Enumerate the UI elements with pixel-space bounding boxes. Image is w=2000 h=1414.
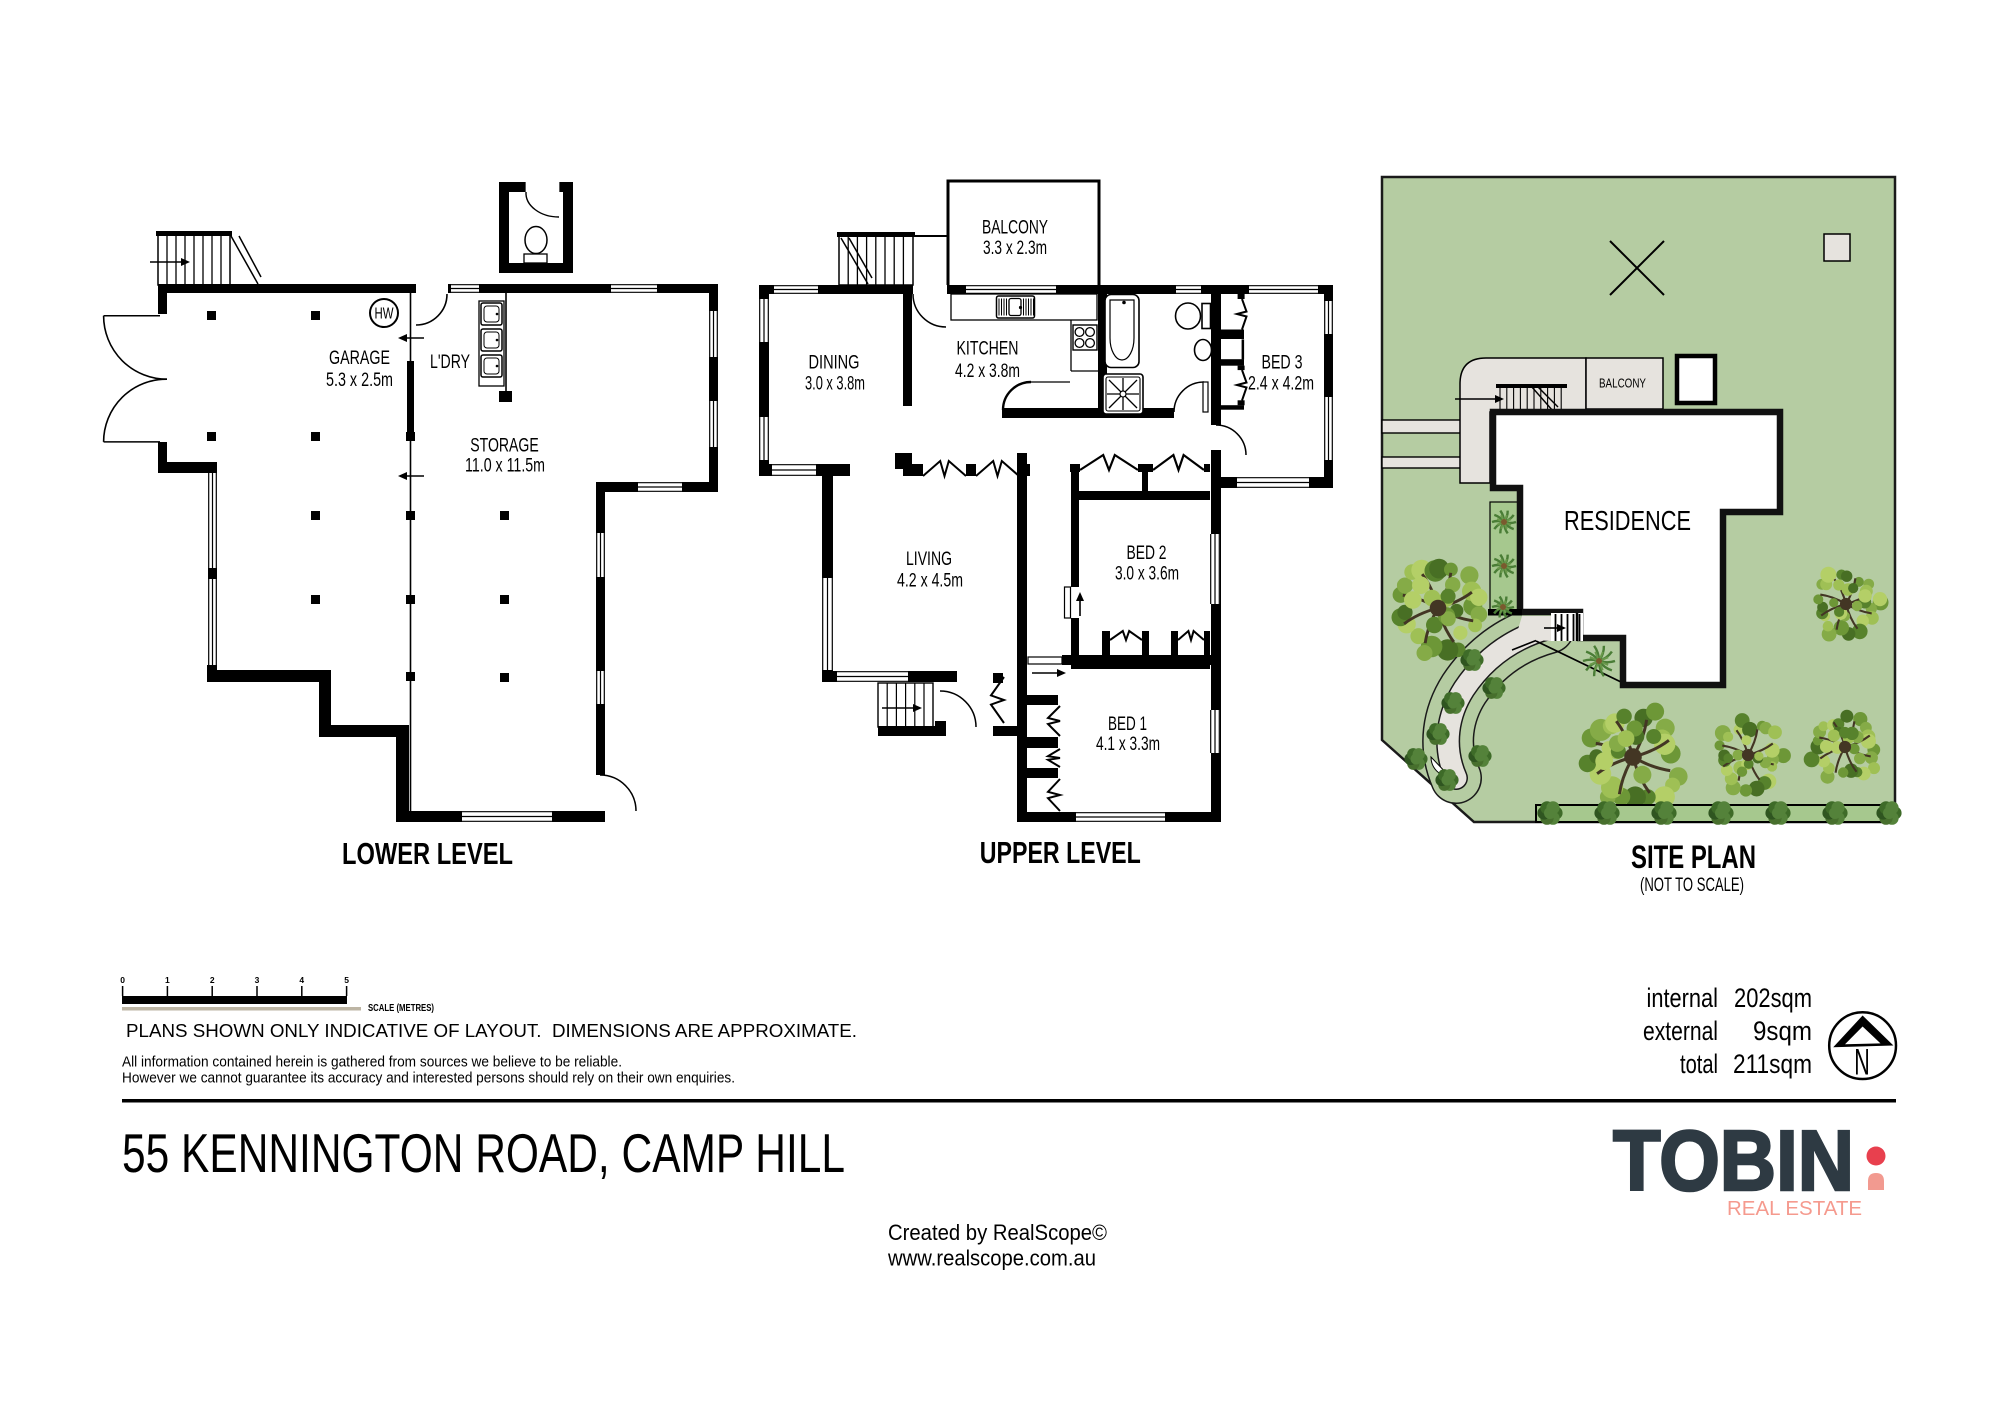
svg-text:external: external [1643,1016,1718,1046]
svg-text:BED 1: BED 1 [1108,713,1147,735]
svg-text:TOBIN: TOBIN [1613,1114,1854,1209]
svg-text:3.0 x 3.6m: 3.0 x 3.6m [1115,563,1179,585]
svg-text:REAL ESTATE: REAL ESTATE [1727,1198,1862,1220]
svg-text:3.0 x 3.8m: 3.0 x 3.8m [805,373,865,395]
svg-text:BED 2: BED 2 [1127,542,1167,564]
svg-text:4.2 x 3.8m: 4.2 x 3.8m [955,360,1020,382]
svg-text:STORAGE: STORAGE [470,435,539,457]
svg-text:9sqm: 9sqm [1753,1016,1812,1046]
svg-text:BALCONY: BALCONY [982,217,1048,239]
svg-text:BED 3: BED 3 [1262,352,1303,374]
svg-text:GARAGE: GARAGE [329,347,390,369]
svg-text:LIVING: LIVING [906,548,952,570]
svg-text:total: total [1680,1049,1718,1079]
svg-text:RESIDENCE: RESIDENCE [1564,505,1691,536]
svg-text:202sqm: 202sqm [1734,983,1812,1013]
svg-text:(NOT TO SCALE): (NOT TO SCALE) [1640,875,1744,896]
svg-text:HW: HW [375,306,395,323]
svg-text:4.2 x 4.5m: 4.2 x 4.5m [897,570,963,592]
svg-text:All information contained here: All information contained herein is gath… [122,1054,622,1071]
svg-text:0: 0 [120,975,125,985]
svg-text:2.4 x 4.2m: 2.4 x 4.2m [1248,373,1314,395]
svg-text:3: 3 [255,975,260,985]
svg-text:SCALE (METRES): SCALE (METRES) [368,1003,434,1014]
svg-text:www.realscope.com.au: www.realscope.com.au [887,1246,1096,1271]
svg-text:UPPER LEVEL: UPPER LEVEL [980,835,1141,870]
svg-text:However we cannot guarantee it: However we cannot guarantee its accuracy… [122,1070,735,1087]
svg-text:5.3 x 2.5m: 5.3 x 2.5m [326,369,393,391]
svg-text:4.1 x 3.3m: 4.1 x 3.3m [1096,733,1160,755]
svg-text:L'DRY: L'DRY [430,351,470,373]
svg-text:211sqm: 211sqm [1733,1049,1812,1079]
svg-text:3.3 x 2.3m: 3.3 x 2.3m [983,237,1047,259]
svg-text:55 KENNINGTON ROAD, CAMP HILL: 55 KENNINGTON ROAD, CAMP HILL [122,1123,845,1184]
svg-text:Created by RealScope©: Created by RealScope© [888,1220,1107,1245]
svg-text:internal: internal [1647,983,1719,1013]
svg-text:PLANS SHOWN ONLY INDICATIVE OF: PLANS SHOWN ONLY INDICATIVE OF LAYOUT. D… [126,1020,857,1041]
svg-text:5: 5 [344,975,349,985]
svg-text:4: 4 [299,975,304,985]
svg-text:BALCONY: BALCONY [1599,376,1646,391]
svg-text:N: N [1854,1042,1870,1083]
svg-text:1: 1 [165,975,170,985]
svg-text:2: 2 [210,975,215,985]
svg-text:SITE PLAN: SITE PLAN [1631,839,1756,875]
svg-text:DINING: DINING [809,352,860,374]
svg-text:KITCHEN: KITCHEN [957,338,1019,360]
svg-text:11.0 x 11.5m: 11.0 x 11.5m [465,455,545,477]
svg-text:LOWER LEVEL: LOWER LEVEL [342,836,513,871]
